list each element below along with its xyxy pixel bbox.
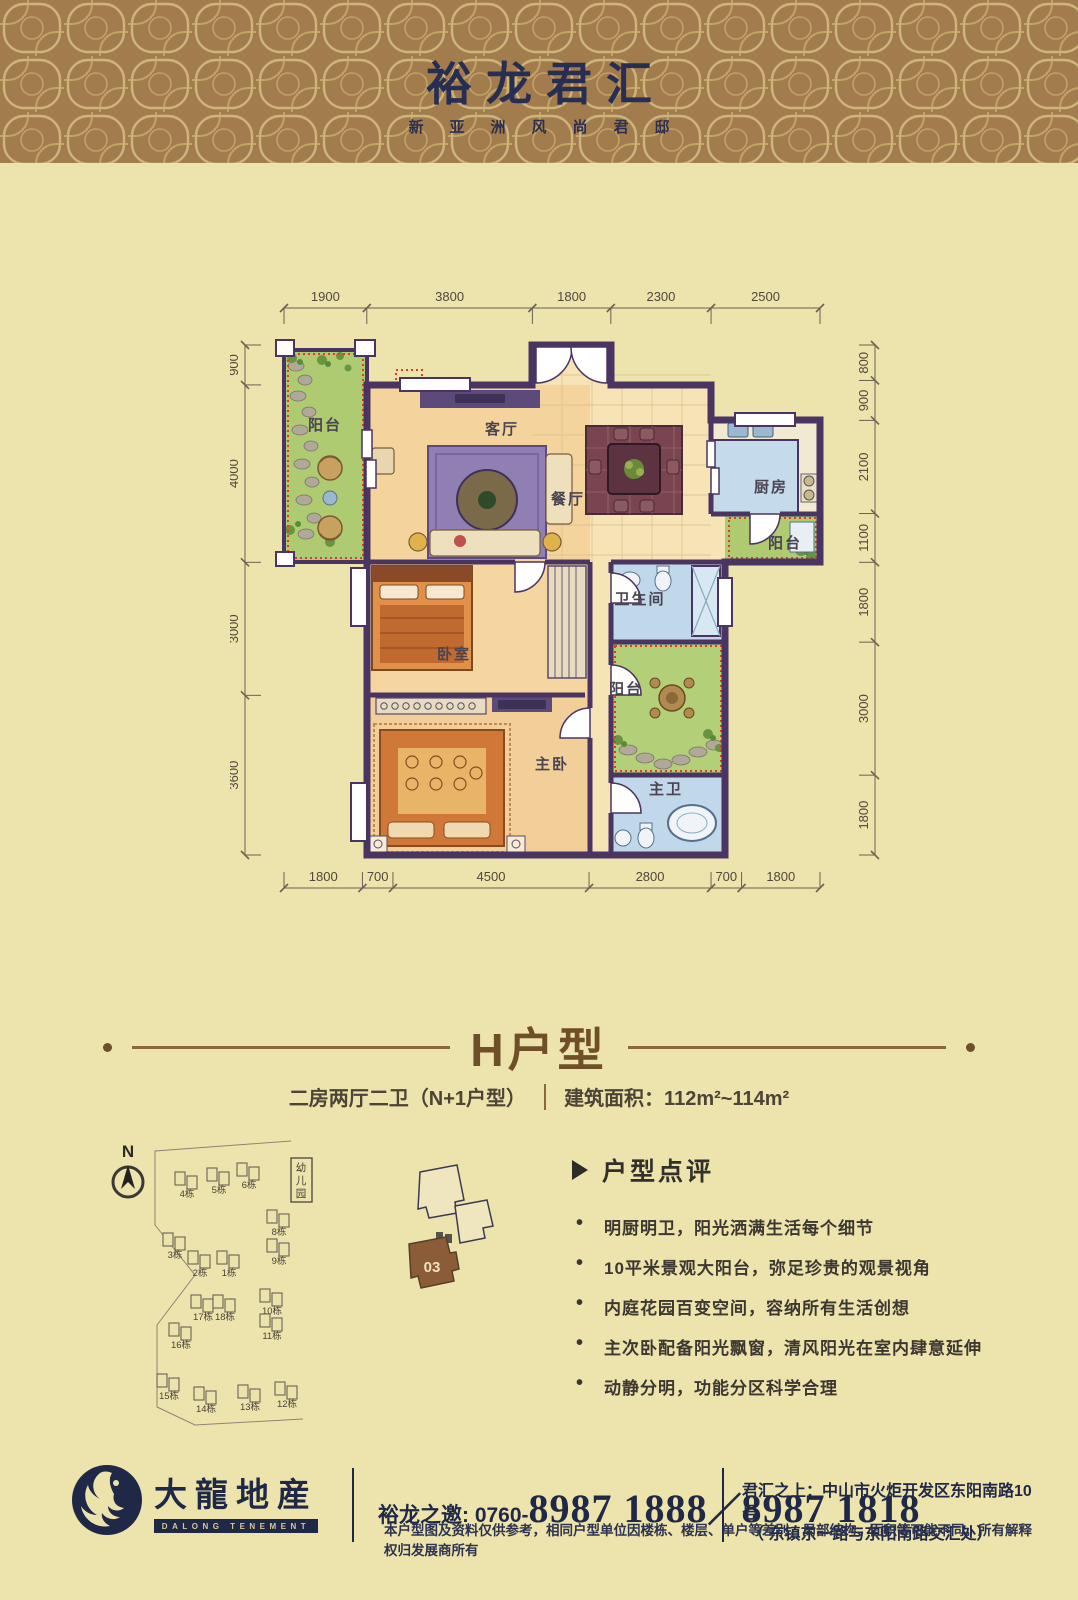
site-building-label: 1栋	[222, 1267, 237, 1279]
subtitle-divider	[544, 1084, 546, 1110]
dimension-label: 700	[715, 869, 737, 884]
review-bullet: 明厨明卫，阳光洒满生活每个细节	[572, 1214, 1024, 1239]
triangle-bullet-icon	[572, 1160, 588, 1180]
project-slogan: 新亚洲风尚君邸	[0, 116, 1078, 137]
room-label: 厨房	[754, 478, 788, 496]
site-building-label: 3栋	[168, 1249, 183, 1261]
dimension-label: 4500	[477, 869, 506, 884]
site-building-block	[249, 1167, 259, 1180]
developer-name-en: DALONG TENEMENT	[154, 1519, 318, 1533]
dimension-label: 1100	[856, 524, 871, 552]
dimension-label: 1900	[311, 289, 340, 304]
site-building-block	[175, 1172, 185, 1185]
room-label: 客厅	[484, 420, 519, 438]
dimension-label: 2800	[636, 869, 665, 884]
review-bullet: 内庭花园百变空间，容纳所有生活创想	[572, 1294, 1024, 1319]
site-building-block	[225, 1299, 235, 1312]
review-bullet: 主次卧配备阳光飘窗，清风阳光在室内肆意延伸	[572, 1334, 1024, 1359]
keyplan-wing	[455, 1200, 493, 1243]
site-building-label: 5栋	[212, 1184, 227, 1196]
site-building-label: 17栋	[193, 1311, 214, 1323]
review-bullet: 10平米景观大阳台，弥足珍贵的观景视角	[572, 1254, 1024, 1279]
site-buildings: 4栋5栋6栋3栋2栋1栋8栋9栋17栋18栋16栋10栋11栋15栋14栋13栋…	[157, 1163, 298, 1415]
address-line-1: 君汇之上：中山市火炬开发区东阳南路10号	[742, 1481, 1032, 1524]
site-building-block	[206, 1391, 216, 1404]
keyplan-unit-number: 03	[424, 1259, 441, 1276]
site-building-block	[250, 1389, 260, 1402]
site-building-block	[217, 1251, 227, 1264]
dimension-label: 800	[856, 352, 871, 374]
review-bullet-list: 明厨明卫，阳光洒满生活每个细节10平米景观大阳台，弥足珍贵的观景视角内庭花园百变…	[572, 1214, 1024, 1399]
dimension-label: 900	[856, 390, 871, 412]
kindergarten-label: 幼儿园	[296, 1161, 307, 1200]
keyplan-locator: 03	[365, 1130, 555, 1310]
room-label: 阳台	[768, 534, 802, 552]
site-building-block	[237, 1163, 247, 1176]
dimension-label: 1800	[856, 588, 871, 617]
room-label: 卫生间	[614, 590, 665, 608]
siteplan-map: N 幼儿园 4栋5栋6栋3栋2栋1栋8栋9栋17栋18栋16栋10栋11栋15栋…	[95, 1125, 365, 1430]
site-building-block	[279, 1214, 289, 1227]
review-heading: 户型点评	[602, 1152, 714, 1188]
site-building-label: 8栋	[272, 1226, 287, 1238]
dimension-label: 1800	[766, 869, 795, 884]
room-label: 阳台	[308, 416, 342, 434]
right-rule	[628, 1046, 946, 1049]
dimension-label: 3000	[230, 614, 241, 643]
site-building-block	[219, 1172, 229, 1185]
site-building-block	[229, 1255, 239, 1268]
dimension-label: 3000	[856, 694, 871, 723]
footer-divider-1	[352, 1468, 354, 1542]
unit-subtitle-row: 二房两厅二卫（N+1户型） 建筑面积：112m²~114m²	[0, 1082, 1078, 1111]
site-building-block	[169, 1323, 179, 1336]
developer-name-cn: 大龍地産	[154, 1468, 318, 1516]
unit-area: 建筑面积：112m²~114m²	[564, 1082, 789, 1111]
site-building-block	[203, 1299, 213, 1312]
north-label: N	[122, 1142, 134, 1161]
site-building-block	[260, 1289, 270, 1302]
unit-title-row: H户型	[0, 1014, 1078, 1080]
site-building-block	[188, 1251, 198, 1264]
dimension-label: 4000	[230, 459, 241, 488]
site-building-block	[279, 1243, 289, 1256]
site-building-label: 9栋	[272, 1255, 287, 1267]
dragon-logo-icon	[70, 1463, 144, 1537]
room-label: 卧室	[437, 645, 471, 663]
site-building-block	[181, 1327, 191, 1340]
site-building-block	[267, 1239, 277, 1252]
floorplan-drawing: 1900380018002300250018007004500280070018…	[230, 278, 940, 913]
unit-title: H户型	[470, 1014, 607, 1080]
site-building-label: 12栋	[277, 1398, 298, 1410]
site-building-block	[272, 1293, 282, 1306]
site-building-block	[272, 1318, 282, 1331]
developer-logo: 大龍地産 DALONG TENEMENT	[70, 1463, 318, 1537]
room-label: 餐厅	[551, 490, 585, 508]
dimension-label: 3600	[230, 761, 241, 790]
project-title: 裕龙君汇	[0, 48, 1078, 114]
dimension-label: 1800	[309, 869, 338, 884]
dimension-label: 900	[230, 354, 241, 376]
site-building-label: 18栋	[215, 1311, 236, 1323]
site-building-block	[187, 1176, 197, 1189]
left-rule	[132, 1046, 450, 1049]
room-label: 主卧	[535, 755, 569, 773]
site-building-label: 13栋	[240, 1401, 261, 1413]
flyer-page: 裕龙君汇 新亚洲风尚君邸	[0, 0, 1078, 1600]
dimension-label: 700	[367, 869, 389, 884]
left-dot	[103, 1043, 112, 1052]
dimension-label: 2500	[751, 289, 780, 304]
site-building-block	[275, 1382, 285, 1395]
site-building-block	[287, 1386, 297, 1399]
room-label: 阳台	[609, 680, 643, 698]
header-banner: 裕龙君汇 新亚洲风尚君邸	[0, 0, 1078, 163]
site-building-label: 15栋	[159, 1390, 180, 1402]
room-label: 主卫	[649, 780, 683, 798]
site-building-label: 4栋	[180, 1188, 195, 1200]
disclaimer-text: 本户型图及资料仅供参考，相同户型单位因楼栋、楼层、单户等差别，局部结构、面积等可…	[384, 1519, 1034, 1559]
site-building-block	[207, 1168, 217, 1181]
site-building-block	[157, 1374, 167, 1387]
site-building-block	[260, 1314, 270, 1327]
site-building-label: 14栋	[196, 1403, 217, 1415]
site-building-label: 6栋	[242, 1179, 257, 1191]
right-dot	[966, 1043, 975, 1052]
site-building-block	[238, 1385, 248, 1398]
site-building-block	[175, 1237, 185, 1250]
dimension-label: 3800	[435, 289, 464, 304]
site-building-label: 11栋	[262, 1330, 282, 1342]
unit-spec: 二房两厅二卫（N+1户型）	[289, 1082, 526, 1111]
site-building-block	[194, 1387, 204, 1400]
site-building-block	[169, 1378, 179, 1391]
site-building-block	[163, 1233, 173, 1246]
review-bullet: 动静分明，功能分区科学合理	[572, 1374, 1024, 1399]
site-building-block	[213, 1295, 223, 1308]
dimension-label: 2300	[646, 289, 675, 304]
review-section: 户型点评 明厨明卫，阳光洒满生活每个细节10平米景观大阳台，弥足珍贵的观景视角内…	[572, 1152, 1024, 1414]
site-building-block	[191, 1295, 201, 1308]
dimension-label: 2100	[856, 452, 871, 481]
site-building-label: 16栋	[171, 1339, 192, 1351]
site-building-label: 2栋	[193, 1267, 208, 1279]
site-building-block	[200, 1255, 210, 1268]
site-building-block	[267, 1210, 277, 1223]
dimension-label: 1800	[557, 289, 586, 304]
dimension-label: 1800	[856, 801, 871, 830]
